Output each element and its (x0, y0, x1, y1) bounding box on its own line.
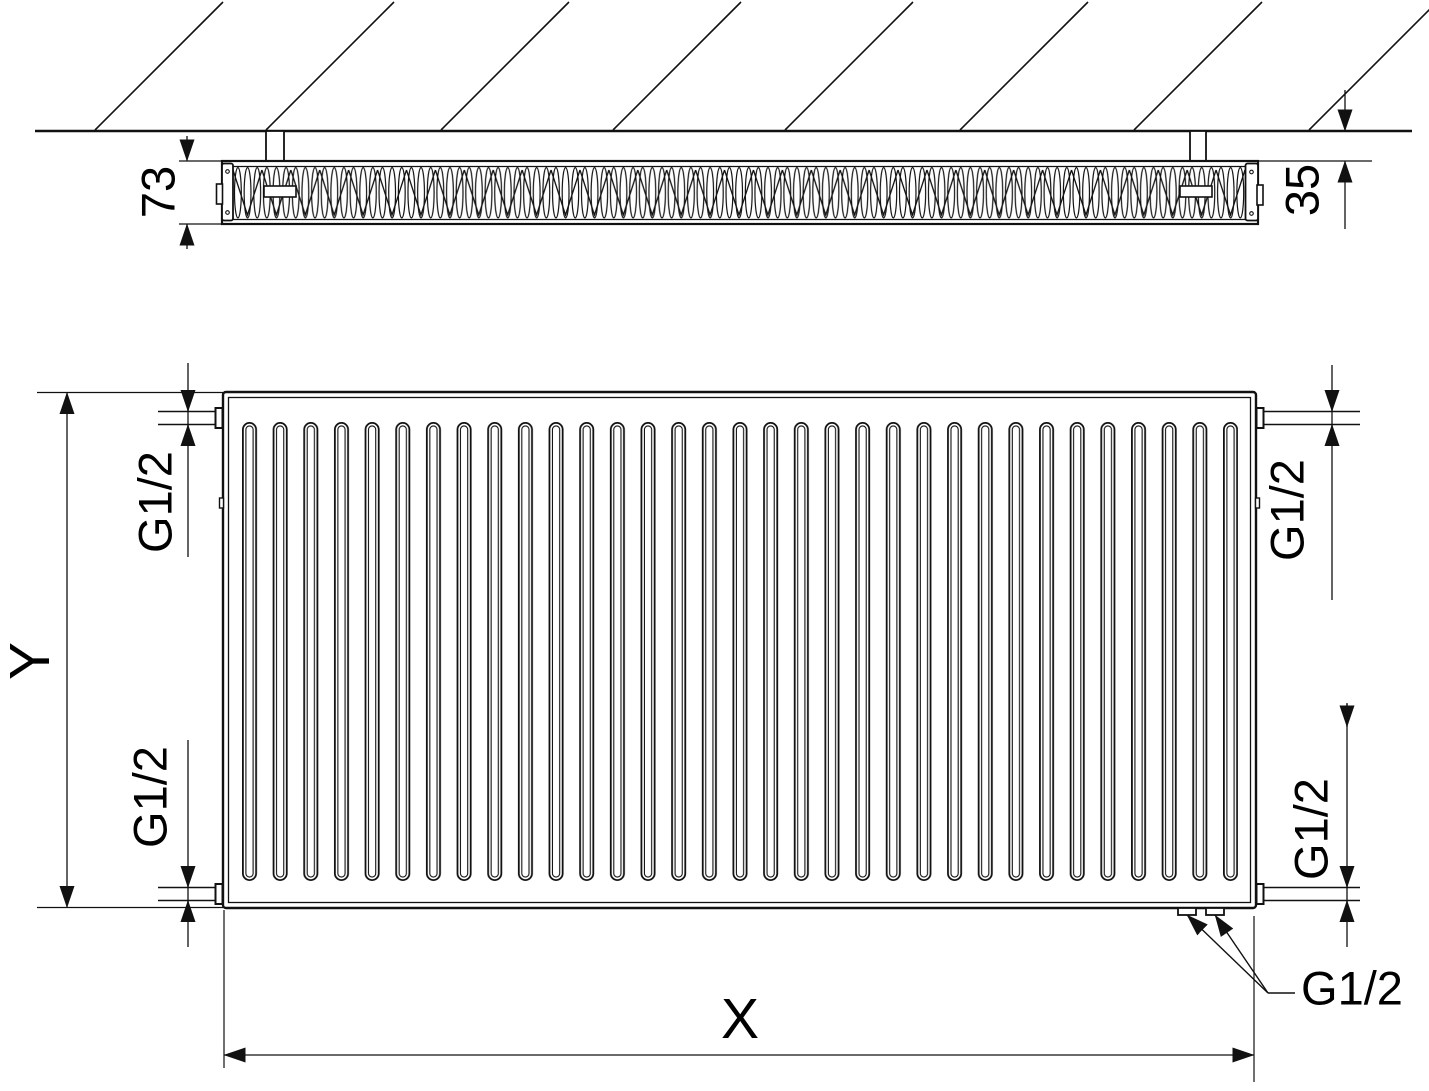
dimension-width-X: X (224, 910, 1254, 1082)
front-view: Y X G1/2 G1/2 G1/2 (0, 363, 1403, 1082)
bracket-foot-right (1180, 186, 1212, 197)
conn-top-right-label: G1/2 (1261, 459, 1314, 561)
convector-fins (233, 167, 1245, 220)
wall-bracket-left (266, 131, 284, 161)
depth-label: 73 (132, 166, 185, 218)
wall-gap-label: 35 (1276, 164, 1329, 216)
dimension-height-Y: Y (0, 393, 223, 908)
wall-bracket-right (1190, 131, 1206, 161)
pipe-stub-top-left (158, 408, 223, 428)
dimension-conn-top-right: G1/2 (1261, 365, 1333, 600)
leader-conn-bottom: G1/2 (1187, 915, 1403, 1015)
dimension-depth-73: 73 (132, 136, 223, 249)
dimension-conn-bottom-right: G1/2 (1285, 703, 1348, 947)
pipe-stub-top-right (1257, 408, 1361, 428)
conn-bottom-left-label: G1/2 (124, 746, 177, 848)
drawing-canvas: 73 35 (0, 0, 1429, 1091)
pipe-stub-bottom-right (1257, 884, 1361, 904)
bottom-connection-tab-2 (1206, 908, 1224, 915)
width-label: X (721, 987, 759, 1051)
radiator-technical-drawing: 73 35 (0, 0, 1429, 1091)
dimension-conn-bottom-left: G1/2 (124, 740, 189, 947)
wall-hatch (95, 2, 1429, 130)
conn-top-left-label: G1/2 (129, 451, 182, 553)
conn-bottom-right-label: G1/2 (1285, 778, 1338, 880)
dimension-wall-gap-35: 35 (1258, 90, 1372, 229)
bottom-connection-tab-1 (1178, 908, 1196, 915)
top-view-section: 73 35 (35, 2, 1429, 249)
side-nub-right (1256, 498, 1260, 508)
end-cap-left (217, 164, 234, 221)
pipe-stub-bottom-left (158, 884, 223, 904)
height-label: Y (0, 642, 62, 680)
end-cap-right (1246, 164, 1264, 221)
side-nub-left (220, 498, 224, 508)
panel-channels (242, 422, 1238, 881)
conn-bottom-leader-label: G1/2 (1301, 962, 1403, 1015)
bracket-foot-left (264, 186, 296, 197)
